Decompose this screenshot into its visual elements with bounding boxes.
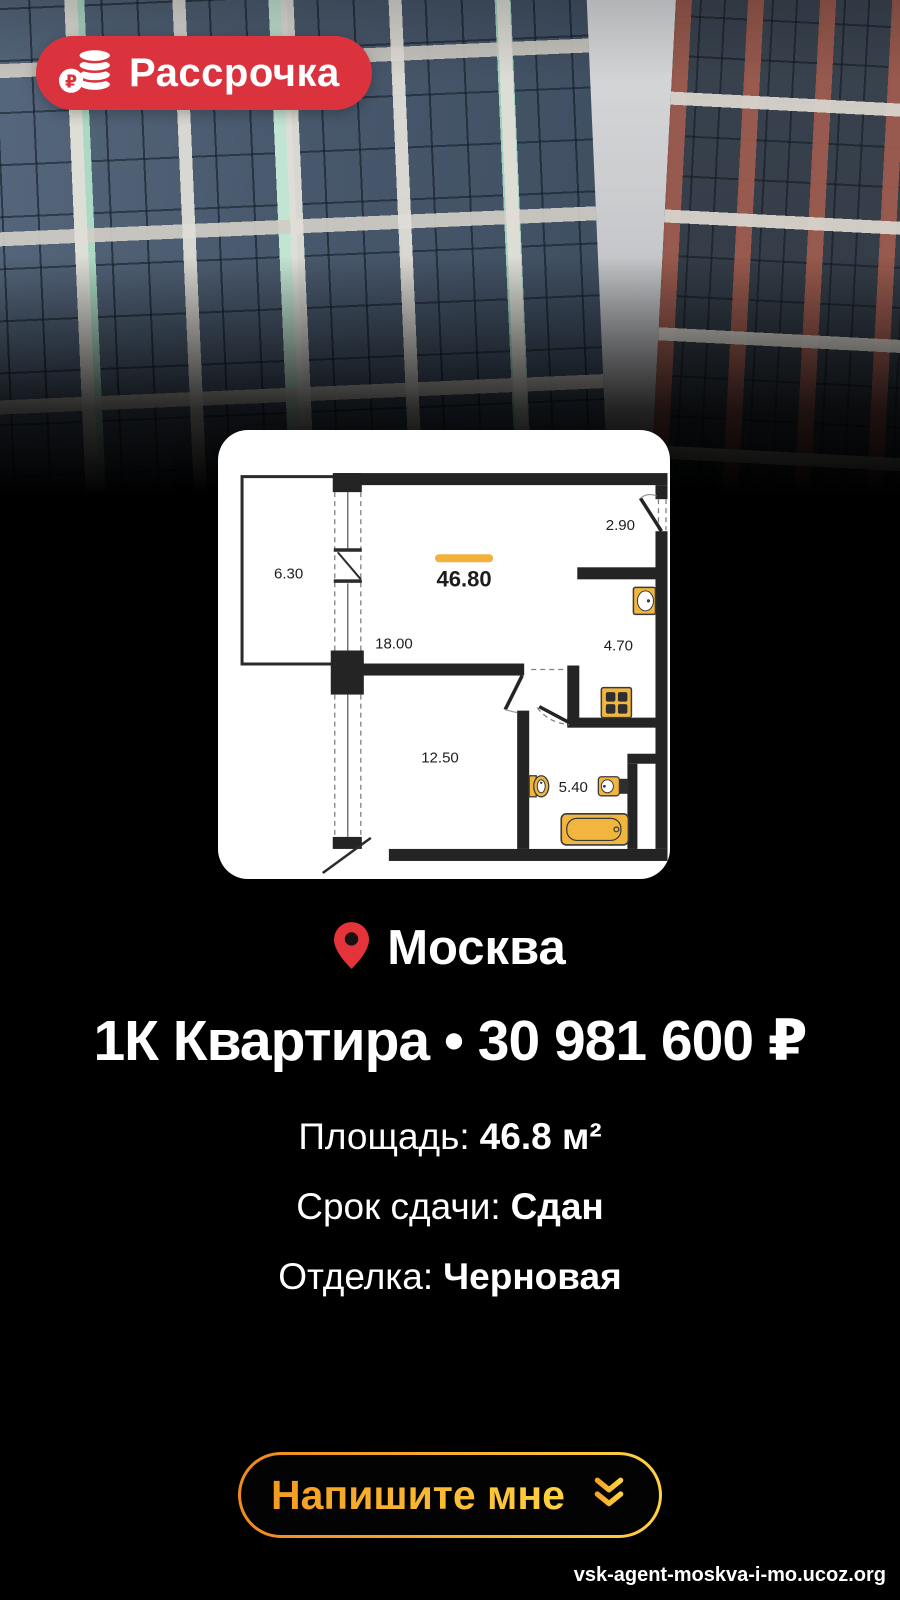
location-city: Москва — [387, 920, 566, 976]
room-area-label: 5.40 — [559, 779, 588, 796]
installment-badge-label: Рассрочка — [129, 51, 340, 96]
room-area-label: 12.50 — [421, 750, 459, 767]
specs-list: Площадь:46.8 м² Срок сдачи:Сдан Отделка:… — [0, 1116, 900, 1298]
story-ad-page: ₽ Рассрочка — [0, 0, 900, 1600]
listing-title: 1К Квартира • 30 981 600 ₽ — [0, 1008, 900, 1074]
location-row: Москва — [0, 920, 900, 976]
total-area-accent — [435, 554, 493, 562]
bathtub-icon — [561, 814, 628, 845]
double-chevron-down-icon — [589, 1475, 629, 1516]
spec-label: Срок сдачи: — [296, 1186, 500, 1227]
ruble-coins-icon: ₽ — [58, 45, 116, 102]
spec-area: Площадь:46.8 м² — [298, 1116, 601, 1158]
building-right — [646, 0, 900, 512]
svg-text:₽: ₽ — [65, 71, 77, 91]
write-me-button[interactable]: Напишите мне — [238, 1452, 662, 1538]
spec-value: Сдан — [511, 1186, 604, 1227]
room-area-label: 18.00 — [375, 635, 413, 652]
write-me-button-label: Напишите мне — [271, 1472, 565, 1519]
footer-url: vsk-agent-moskva-i-mo.ucoz.org — [574, 1564, 886, 1587]
hall-sink-icon — [633, 587, 655, 614]
bathroom-sink-icon — [598, 777, 628, 796]
balcony-door — [334, 548, 362, 583]
building-right-dark-edge — [892, 0, 900, 512]
floorplan-svg: 46.80 6.30 2.90 18.00 4.70 12.50 5.40 — [218, 430, 670, 879]
map-pin-icon — [334, 922, 369, 974]
total-area-label: 46.80 — [436, 566, 491, 591]
toilet-icon — [529, 776, 549, 797]
spec-completion: Срок сдачи:Сдан — [296, 1186, 604, 1228]
room-area-label: 6.30 — [274, 565, 303, 582]
room-area-label: 2.90 — [606, 517, 635, 534]
stove-icon — [601, 688, 631, 718]
spec-label: Площадь: — [298, 1116, 469, 1157]
spec-label: Отделка: — [278, 1256, 433, 1297]
room-area-label: 4.70 — [604, 637, 633, 654]
sky — [555, 0, 745, 450]
spec-finishing: Отделка:Черновая — [278, 1256, 621, 1298]
spec-value: Черновая — [443, 1256, 622, 1297]
installment-badge: ₽ Рассрочка — [36, 36, 372, 110]
spec-value: 46.8 м² — [480, 1116, 602, 1157]
write-me-button-inner: Напишите мне — [241, 1455, 659, 1535]
floorplan-card: 46.80 6.30 2.90 18.00 4.70 12.50 5.40 — [218, 430, 670, 879]
